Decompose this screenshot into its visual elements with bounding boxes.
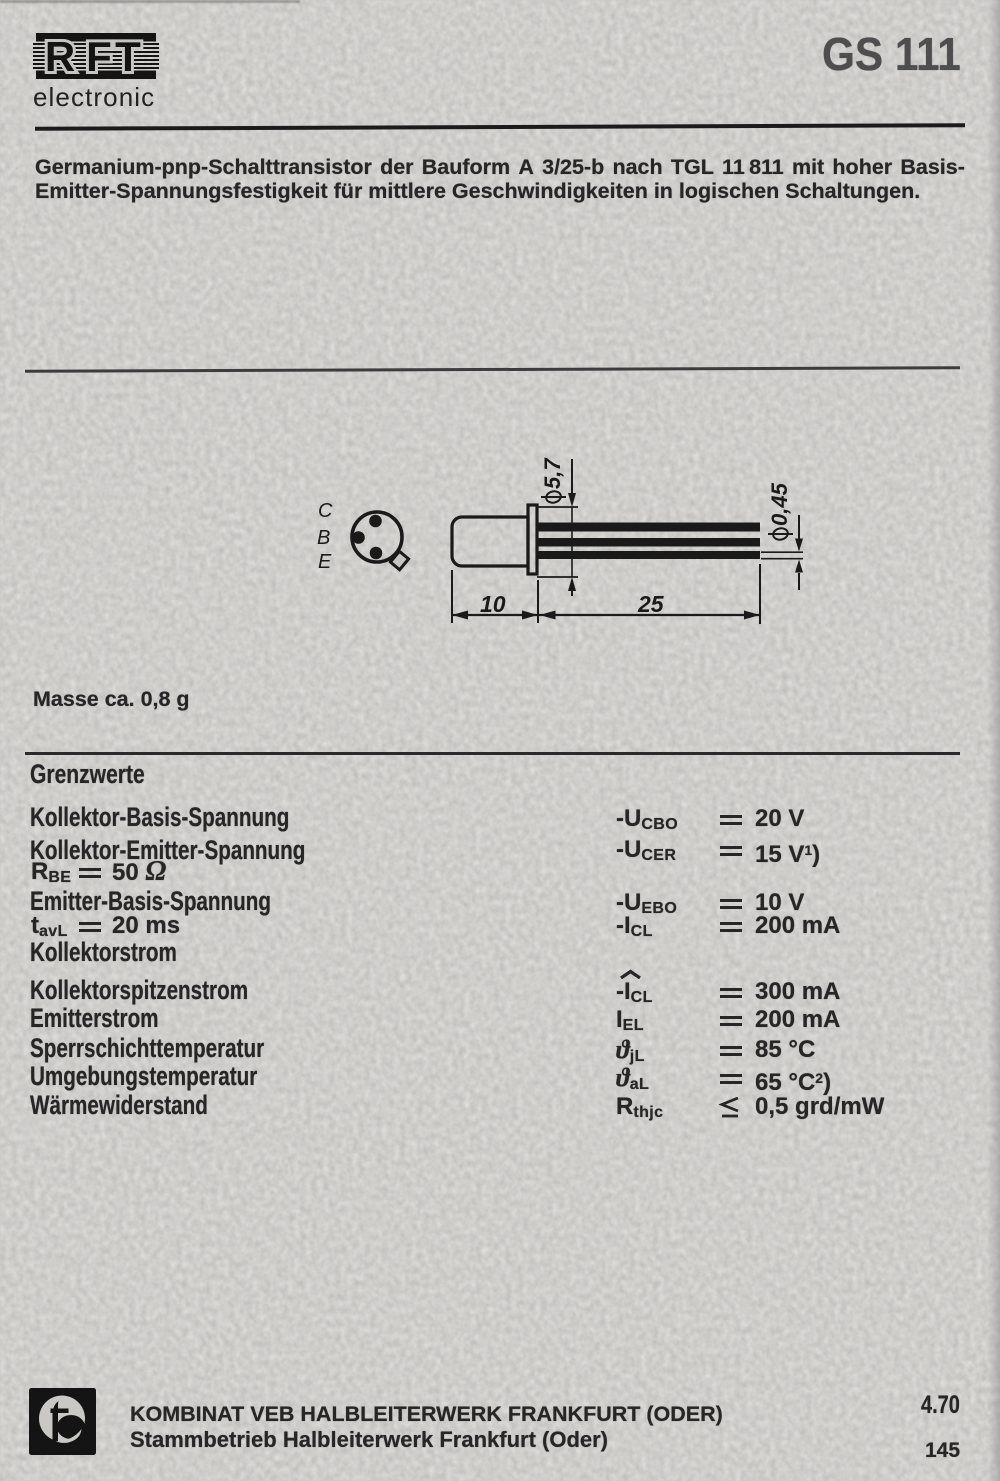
svg-text:5,7: 5,7	[540, 457, 565, 489]
svg-text:R: R	[45, 33, 75, 80]
svg-text:E: E	[318, 551, 332, 573]
svg-text:C: C	[318, 500, 333, 522]
svg-text:F: F	[86, 33, 112, 80]
svg-text:10: 10	[480, 591, 506, 617]
svg-text:25: 25	[637, 591, 665, 617]
svg-text:T: T	[115, 33, 141, 80]
svg-text:B: B	[317, 527, 330, 549]
svg-text:0,45: 0,45	[767, 482, 792, 526]
